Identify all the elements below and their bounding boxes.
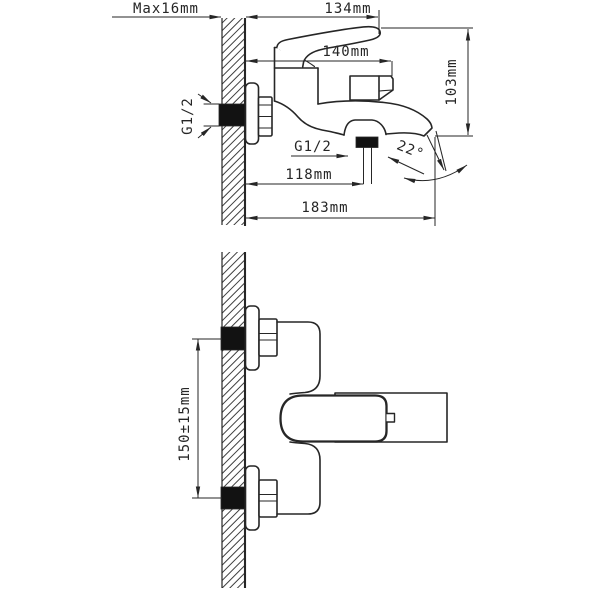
label-183: 183mm <box>301 200 348 216</box>
spout-top-edge <box>318 101 432 136</box>
spout-junction <box>275 101 345 135</box>
body-plan-bottom <box>277 442 320 514</box>
label-inlet-thread-group: G1/2 <box>180 94 211 138</box>
escutcheon-top <box>246 306 260 370</box>
hose-connection-boss <box>344 120 386 135</box>
label-spray-angle: 22° <box>394 138 426 163</box>
wall-hatch-top <box>222 252 245 327</box>
plan-view: 150±15mm <box>177 252 447 588</box>
label-140: 140mm <box>322 44 369 60</box>
hex-nut-top <box>259 319 277 356</box>
faucet-plan <box>246 306 448 530</box>
diverter-outlet <box>350 76 393 100</box>
wall-hatch-middle <box>222 350 245 487</box>
escutcheon-side <box>246 83 259 144</box>
label-118: 118mm <box>285 167 332 183</box>
wall-hatch-lower <box>222 126 245 225</box>
wall-hatch-bottom <box>222 509 245 588</box>
inlet-pipe-bottom <box>221 487 245 509</box>
handle-indicator-nub <box>387 414 395 423</box>
label-inlet-thread: G1/2 <box>180 97 196 135</box>
faucet-dimension-drawing: Max16mm 134mm 140mm 103mm G1/2 <box>0 0 600 600</box>
wall-hatch-upper <box>222 18 245 104</box>
label-hose-thread-group: G1/2 <box>291 139 348 156</box>
inlet-pipe-top <box>221 327 245 350</box>
dimension-inlet-spacing: 150±15mm <box>177 339 222 498</box>
label-hose-thread: G1/2 <box>294 139 332 155</box>
lever-handle-plan <box>281 396 387 442</box>
dimension-118: 118mm <box>246 167 364 184</box>
inlet-pipe-section <box>219 104 245 126</box>
hex-nut-bottom <box>259 480 277 517</box>
technical-drawing-page: Max16mm 134mm 140mm 103mm G1/2 <box>0 0 600 600</box>
wall-section-plan <box>221 252 245 588</box>
hose-thread-section <box>356 137 378 148</box>
label-max-wall-thickness: Max16mm <box>133 1 199 17</box>
escutcheon-bottom <box>246 466 260 530</box>
body-plan-top <box>277 322 320 394</box>
label-103: 103mm <box>444 58 460 105</box>
label-inlet-spacing: 150±15mm <box>177 386 193 461</box>
side-view: Max16mm 134mm 140mm 103mm G1/2 <box>112 1 473 226</box>
water-stream-line-2 <box>436 131 446 171</box>
wall-section-side <box>204 18 245 226</box>
dimension-wall-thickness: Max16mm <box>112 1 221 17</box>
label-134: 134mm <box>324 1 371 17</box>
